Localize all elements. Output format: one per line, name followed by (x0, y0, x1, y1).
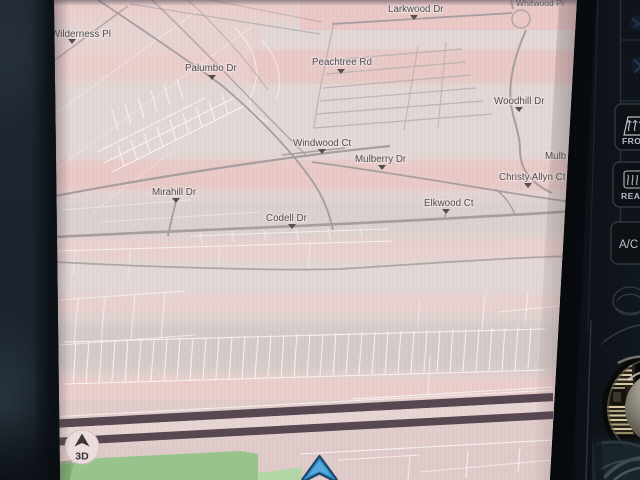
svg-text:REAR: REAR (621, 191, 640, 201)
svg-text:A/C: A/C (619, 239, 638, 251)
svg-text:FRONT: FRONT (622, 136, 640, 146)
